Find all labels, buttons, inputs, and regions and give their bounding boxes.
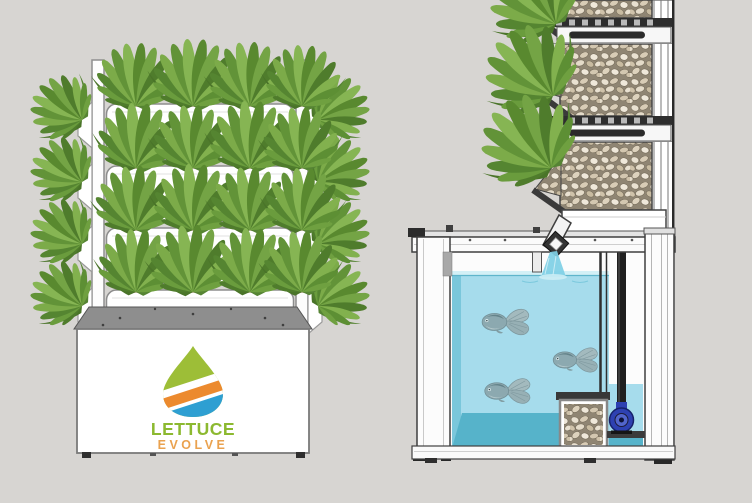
cabinet-foot (232, 453, 238, 456)
vertical-garden-front-view: LETTUCE EVOLVE (16, 37, 385, 459)
illustration-canvas: LETTUCE EVOLVE (0, 0, 752, 503)
splash (539, 274, 567, 280)
aquaponics-illustration: LETTUCE EVOLVE (0, 0, 752, 503)
grow-media-column (533, 0, 672, 221)
brand-name-line1: LETTUCE (151, 419, 235, 439)
spout-hanger-post (533, 252, 542, 272)
base-cabinet: LETTUCE EVOLVE (74, 307, 312, 459)
cabinet-foot (82, 452, 91, 458)
standpipe (617, 250, 626, 408)
filter-media-box (556, 392, 610, 448)
fish-tank (408, 215, 675, 464)
media-grate (550, 18, 672, 44)
media-section (560, 142, 652, 210)
brand-name-line2: EVOLVE (158, 438, 229, 452)
tank-right-post (645, 232, 674, 460)
cabinet-foot (296, 452, 305, 458)
cabinet-top (74, 307, 312, 329)
cabinet-foot (150, 453, 156, 456)
tank-bottom-rail (412, 446, 675, 459)
cross-section-view (408, 0, 675, 464)
tower-rail-left (92, 60, 104, 326)
media-section (560, 44, 652, 116)
water-surface (452, 271, 609, 275)
